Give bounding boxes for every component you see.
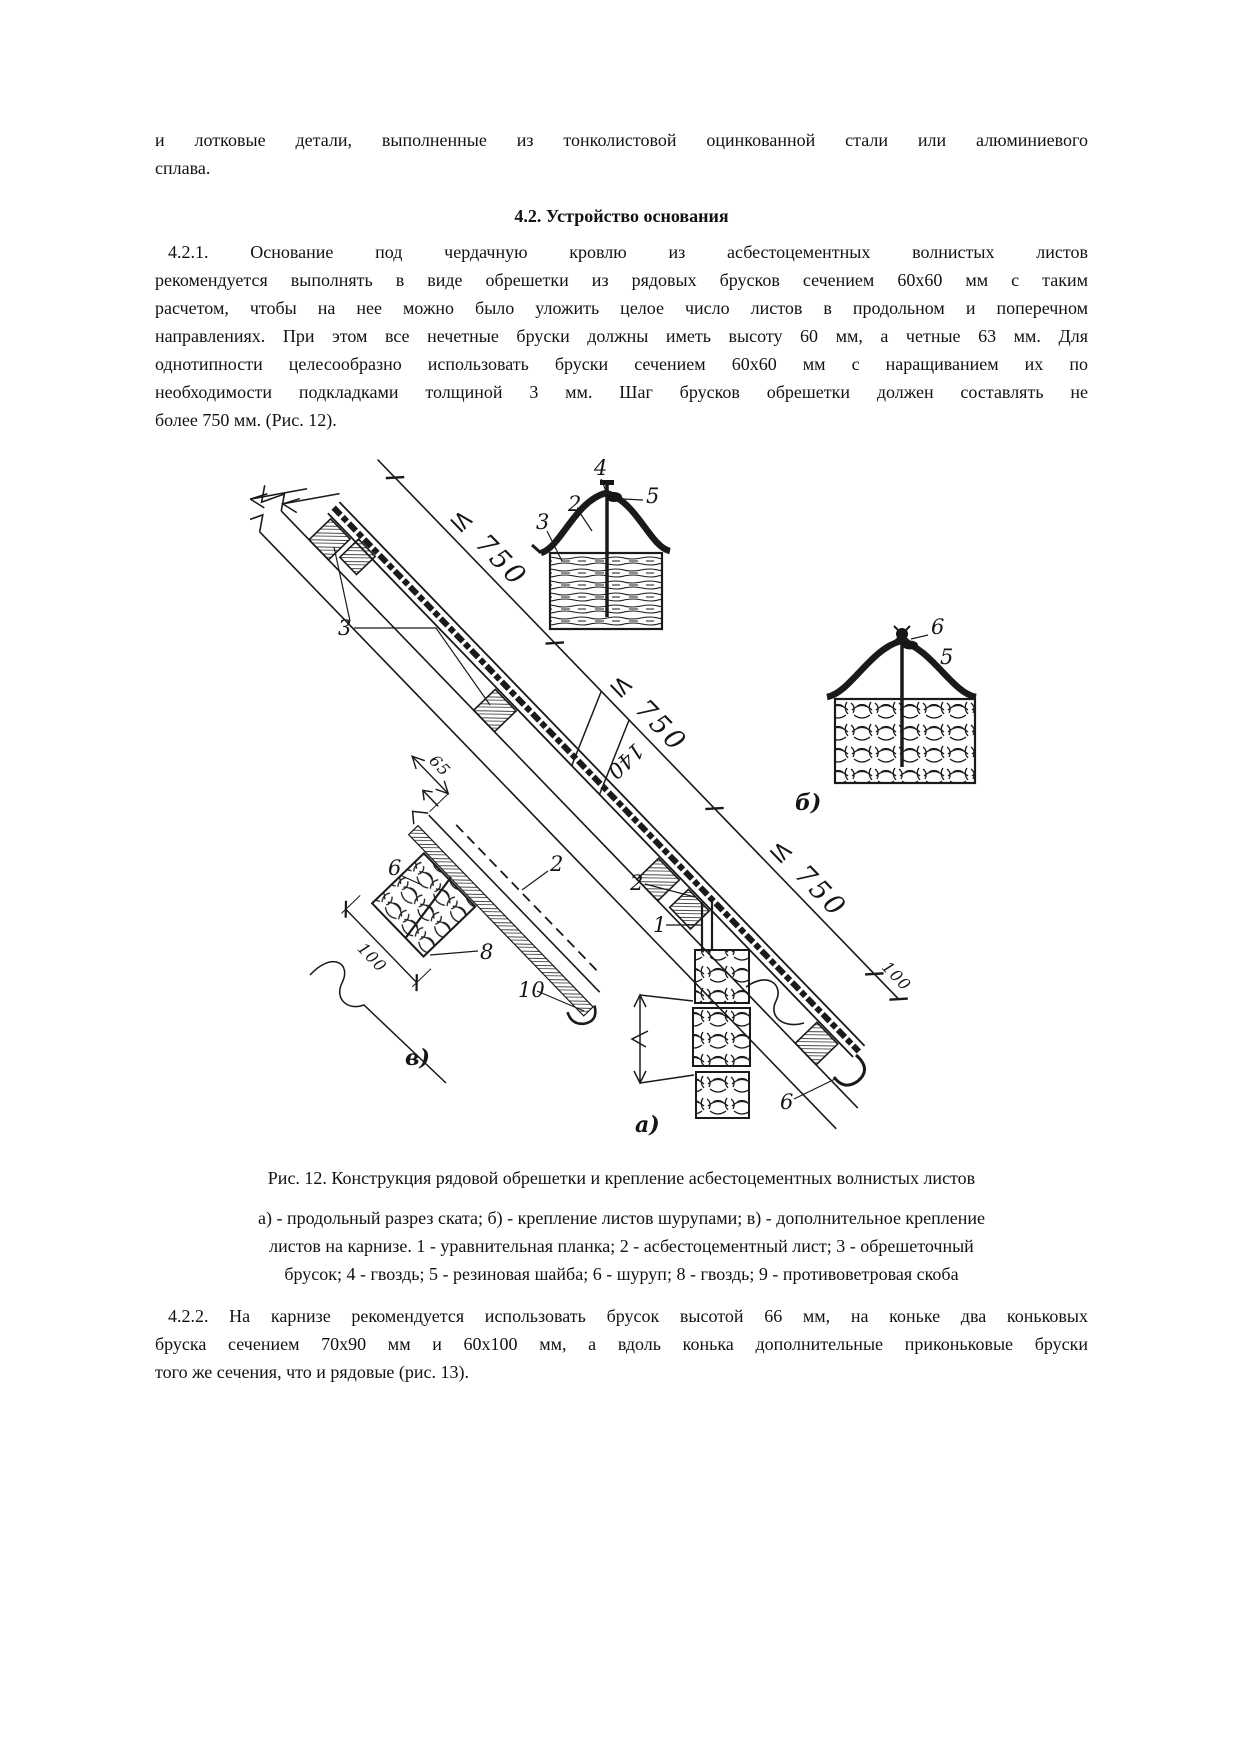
dim-750-label-2: ≤ 750 (603, 667, 693, 759)
text-line: того же сечения, что и рядовые (рис. 13)… (155, 1358, 1088, 1386)
rubber-washer (902, 641, 918, 650)
text-line: и лотковые детали, выполненные из тонкол… (155, 126, 1088, 154)
text-line: более 750 мм. (Рис. 12). (155, 406, 1088, 434)
dim-750-label-1: ≤ 750 (443, 502, 533, 594)
paragraph-4-2-1: 4.2.1. Основание под чердачную кровлю из… (155, 238, 1088, 434)
view-label-a: а) (635, 1112, 660, 1138)
text-line: необходимости подкладками толщиной 3 мм.… (155, 378, 1088, 406)
figure-12-drawing: ≤ 750 ≤ 750 ≤ 750 100 140 (250, 435, 1010, 1140)
label-2-eaves: 2 (549, 852, 563, 876)
view-label-v: в) (405, 1045, 430, 1071)
figure-legend: а) - продольный разрез ската; б) - крепл… (155, 1204, 1088, 1288)
legend-line: листов на карнизе. 1 - уравнительная пла… (155, 1232, 1088, 1260)
slope-assembly-group: ≤ 750 ≤ 750 ≤ 750 100 140 (250, 435, 958, 1134)
dim-100-eaves-label: 100 (878, 957, 915, 994)
detail-eaves-group: 100 65 (284, 740, 647, 1106)
intro-paragraph: и лотковые детали, выполненные из тонкол… (155, 126, 1088, 182)
detail-screw-group: 6 5 б) (795, 615, 976, 816)
detail-nail-group: 4 5 2 3 (532, 456, 670, 629)
text-line: направлениях. При этом все нечетные брус… (155, 322, 1088, 350)
column-dimension-bracket (632, 995, 694, 1083)
detail-leaders (547, 479, 643, 561)
label-6-block: 6 (388, 856, 401, 880)
up-slope-break (401, 786, 442, 827)
view-label-b: б) (795, 790, 821, 816)
dim-65-label: 65 (425, 751, 454, 780)
eaves-hook (834, 1055, 865, 1085)
dim-750-label-3: ≤ 750 (763, 832, 853, 924)
label-2-detail: 2 (567, 492, 581, 516)
label-5: 5 (646, 484, 659, 508)
label-6: 6 (931, 615, 944, 639)
rubber-washer (606, 492, 622, 502)
text-line: бруска сечением 70х90 мм и 60х100 мм, а … (155, 1330, 1088, 1358)
figure-caption: Рис. 12. Конструкция рядовой обрешетки и… (155, 1164, 1088, 1192)
label-10: 10 (518, 978, 545, 1002)
text-line: рекомендуется выполнять в виде обрешетки… (155, 266, 1088, 294)
dim-100-label: 100 (354, 939, 391, 976)
battens-column (693, 950, 750, 1118)
label-2: 2 (629, 871, 643, 895)
label-3: 3 (338, 616, 351, 640)
paragraph-4-2-2: 4.2.2. На карнизе рекомендуется использо… (155, 1302, 1088, 1386)
label-6-eaves-leader (794, 1079, 835, 1099)
label-1: 1 (653, 913, 666, 937)
legend-line: а) - продольный разрез ската; б) - крепл… (155, 1204, 1088, 1232)
sheet-edge (532, 545, 541, 553)
text-line: расчетом, чтобы на нее можно было уложит… (155, 294, 1088, 322)
dim-140-label: 140 (603, 738, 649, 783)
text-line: сплава. (155, 154, 1088, 182)
text-line: 4.2.2. На карнизе рекомендуется использо… (155, 1302, 1088, 1330)
section-heading: 4.2. Устройство основания (155, 206, 1088, 227)
document-page: и лотковые детали, выполненные из тонкол… (0, 0, 1240, 1755)
label-5-detail: 5 (940, 645, 953, 669)
label-3-detail: 3 (536, 510, 549, 534)
label-4: 4 (593, 456, 607, 480)
label-8: 8 (480, 940, 493, 964)
wood-block (835, 699, 975, 783)
legend-line: брусок; 4 - гвоздь; 5 - резиновая шайба;… (155, 1260, 1088, 1288)
text-line: 4.2.1. Основание под чердачную кровлю из… (155, 238, 1088, 266)
label-6-eaves: 6 (780, 1090, 793, 1114)
roof-lathing-diagram: ≤ 750 ≤ 750 ≤ 750 100 140 (250, 435, 1010, 1140)
text-line: однотипности целесообразно использовать … (155, 350, 1088, 378)
